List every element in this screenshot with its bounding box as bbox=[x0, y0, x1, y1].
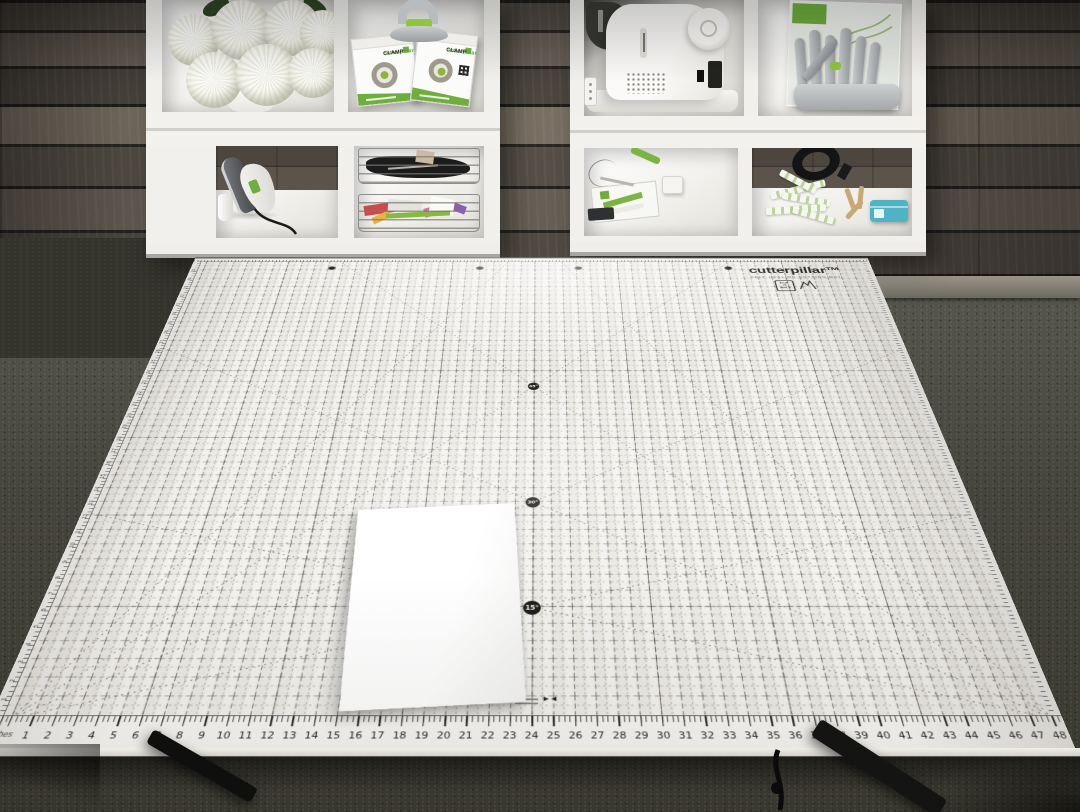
box-product-photo bbox=[370, 61, 399, 90]
ruler-number: 43 bbox=[941, 730, 959, 741]
box-qr-code bbox=[458, 65, 469, 76]
white-paper-sheet bbox=[339, 503, 526, 711]
mat-logo-badges: FLIP IT WALK bbox=[774, 280, 882, 291]
box-product-photo-core bbox=[380, 71, 389, 80]
angle-marker-45: 45° bbox=[528, 383, 539, 390]
angle-marker-15: 15° bbox=[523, 601, 541, 615]
ruler-number: 22 bbox=[480, 730, 494, 741]
ruler-number: 40 bbox=[875, 730, 892, 741]
ruler-number: 17 bbox=[370, 730, 385, 741]
micro-text-line bbox=[515, 703, 538, 705]
mat-brand-text: cutterpillar™ bbox=[748, 266, 875, 274]
ruler-number: 4 bbox=[86, 730, 97, 741]
clamp-base bbox=[390, 26, 448, 42]
flip-badge: FLIP IT WALK bbox=[774, 280, 796, 291]
table-leg-left bbox=[148, 752, 268, 812]
mat-scene: 1234567891011121314151617181920212223242… bbox=[0, 0, 1080, 812]
ruler-number: 34 bbox=[744, 730, 760, 741]
ruler-number: 35 bbox=[766, 730, 782, 741]
craft-room-photo: cutterpillar CLAMP cutterpillar CLAMP bbox=[0, 0, 1080, 812]
ruler-number: 5 bbox=[108, 730, 119, 741]
ruler-number: 25 bbox=[547, 730, 561, 741]
mat-top-ruler bbox=[194, 258, 870, 262]
ruler-number: 31 bbox=[678, 730, 693, 741]
grommet-hole bbox=[724, 266, 733, 269]
ruler-number: 46 bbox=[1007, 730, 1025, 741]
ruler-number: 41 bbox=[897, 730, 914, 741]
box-product-text: CLAMP bbox=[446, 47, 467, 55]
ruler-number: 16 bbox=[348, 730, 364, 741]
ruler-number: 28 bbox=[612, 730, 627, 741]
ruler-number: 11 bbox=[237, 730, 254, 741]
ruler-number: 48 bbox=[1050, 730, 1069, 741]
box-product-photo-core bbox=[437, 67, 446, 76]
ruler-number: 13 bbox=[281, 730, 297, 741]
ruler-number: 29 bbox=[634, 730, 649, 741]
cutting-mat: 1234567891011121314151617181920212223242… bbox=[0, 258, 1076, 750]
ruler-number: 39 bbox=[853, 730, 870, 741]
ruler-number: 1 bbox=[20, 730, 32, 741]
angle-marker-30: 30° bbox=[525, 497, 540, 507]
ruler-number: 45 bbox=[985, 730, 1003, 741]
ruler-number: 33 bbox=[722, 730, 738, 741]
mat-logo: cutterpillar™ SELF-HEALING CUTTING MAT F… bbox=[748, 266, 882, 291]
ruler-number: 23 bbox=[502, 730, 516, 741]
ruler-number: 42 bbox=[919, 730, 936, 741]
mountain-icon bbox=[797, 280, 818, 290]
grommet-hole bbox=[574, 266, 583, 269]
ruler-number: 30 bbox=[656, 730, 671, 741]
mat-tagline-text: SELF-HEALING CUTTING MAT bbox=[750, 275, 876, 278]
ruler-number: 19 bbox=[414, 730, 429, 741]
bottom-ruler-major-ticks bbox=[0, 716, 1066, 726]
ruler-number: 26 bbox=[568, 730, 582, 741]
ruler-number: 20 bbox=[436, 730, 451, 741]
clamp-product-box: cutterpillar CLAMP bbox=[351, 33, 420, 107]
shadow-corner-right bbox=[930, 758, 1080, 812]
ruler-number: 27 bbox=[590, 730, 604, 741]
box-product-text: CLAMP bbox=[383, 49, 404, 57]
ruler-number: 6 bbox=[130, 730, 141, 741]
center-arrows: ►◄ bbox=[542, 694, 557, 702]
ruler-number: 32 bbox=[700, 730, 715, 741]
ruler-number: 3 bbox=[64, 730, 75, 741]
ruler-number: 10 bbox=[215, 730, 232, 741]
box-product-photo bbox=[427, 57, 454, 84]
inches-label: inches bbox=[0, 730, 15, 739]
ruler-number: 12 bbox=[259, 730, 275, 741]
top-ruler-ticks bbox=[194, 260, 870, 262]
ruler-number: 36 bbox=[788, 730, 804, 741]
ruler-number: 8 bbox=[174, 730, 184, 741]
ruler-number: 2 bbox=[42, 730, 53, 741]
ruler-number: 14 bbox=[304, 730, 320, 741]
ruler-number: 24 bbox=[525, 730, 539, 741]
flip-badge-line: WALK bbox=[780, 287, 792, 289]
shadow-corner-left bbox=[0, 744, 100, 812]
ruler-number: 18 bbox=[392, 730, 407, 741]
clamp-tool bbox=[384, 0, 454, 44]
ruler-number: 9 bbox=[196, 730, 206, 741]
ruler-number: 15 bbox=[326, 730, 342, 741]
ruler-number: 21 bbox=[458, 730, 473, 741]
ruler-number: 47 bbox=[1028, 730, 1046, 741]
ruler-number: 44 bbox=[963, 730, 981, 741]
